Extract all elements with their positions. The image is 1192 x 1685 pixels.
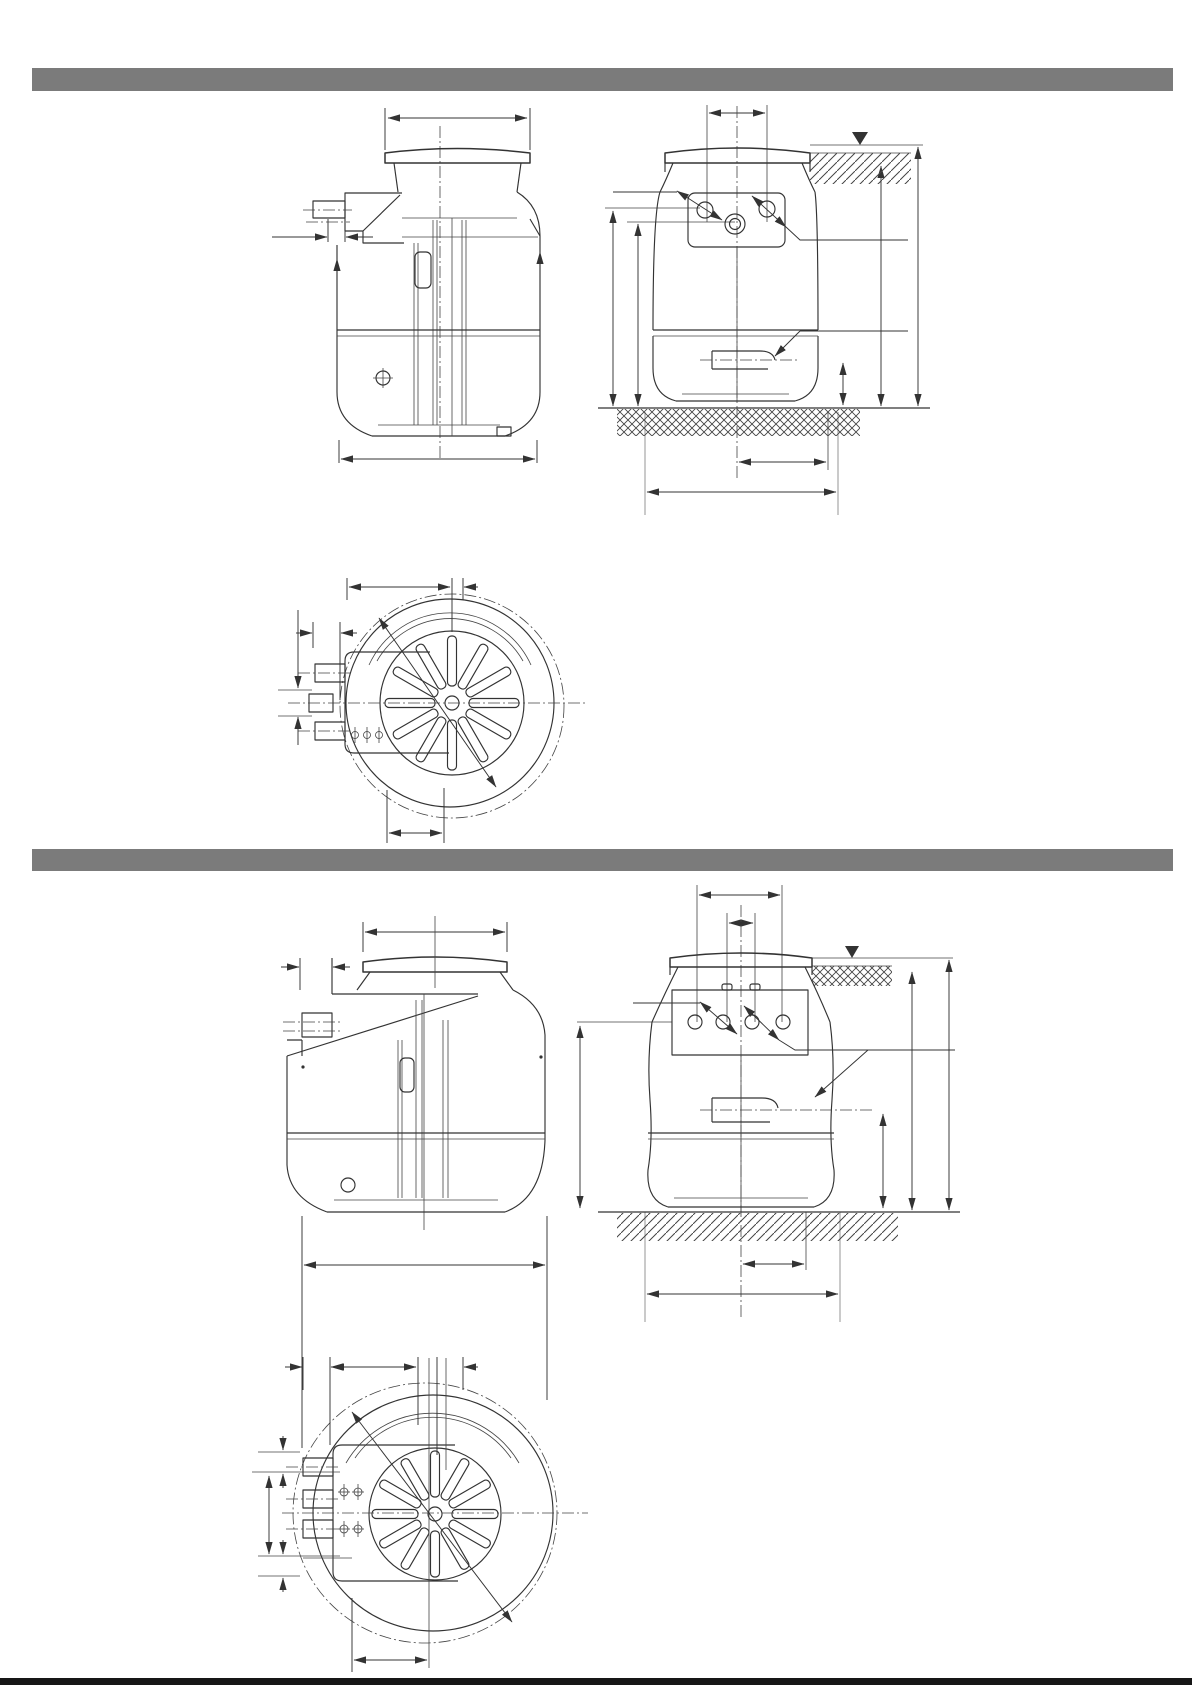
handle-recess <box>415 252 431 288</box>
hole-diameter-dim <box>752 196 786 227</box>
connection-hole <box>745 1015 759 1029</box>
technical-drawing-page <box>0 0 1192 1685</box>
center-gland <box>725 214 745 234</box>
ground <box>598 1212 960 1241</box>
tank-outline <box>653 148 908 401</box>
dimension-lines <box>577 885 955 1322</box>
drain-boss <box>341 1178 355 1192</box>
spoked-cover <box>369 1448 501 1580</box>
groundwater-level-icon <box>845 946 859 958</box>
cover-lid <box>385 149 530 164</box>
inlet-pipe-stub <box>313 201 345 218</box>
connection-plate <box>688 193 785 247</box>
earth-hatch-bottom <box>617 409 860 436</box>
bolt-symbols <box>352 727 383 743</box>
drawing-canvas <box>0 0 1192 1685</box>
connection-hole <box>697 202 713 218</box>
bolt-symbols <box>338 1484 364 1537</box>
dimension-lines <box>281 922 547 1448</box>
groundwater-level-icon <box>852 132 868 145</box>
section-bar-2 <box>32 849 1173 871</box>
connection-hole <box>688 1015 702 1029</box>
hole-diameter-dim <box>700 1002 737 1034</box>
inlet-pipe-stub <box>302 1013 332 1037</box>
pipe-stubs <box>288 664 585 740</box>
groundwater-level <box>810 132 923 145</box>
footer-strip <box>0 1678 1192 1685</box>
inlet-box <box>345 193 404 243</box>
dimension-lines <box>272 108 540 463</box>
earth-hatch-top <box>812 966 892 986</box>
tank-outline <box>303 149 540 437</box>
section-bar-1 <box>32 68 1173 91</box>
chamfer <box>287 996 478 1056</box>
upper-front-view <box>598 105 930 515</box>
connection-hole <box>776 1015 790 1029</box>
earth-hatch-bottom <box>617 1213 898 1241</box>
lower-front-view <box>577 885 960 1322</box>
earth-hatch-top <box>810 153 911 184</box>
upper-side-view <box>272 108 540 463</box>
hole-diameter-dim <box>744 1006 779 1040</box>
cover-lid <box>665 148 810 163</box>
upper-plan-view <box>278 578 585 843</box>
pit-diameter-dim <box>379 618 496 787</box>
groundwater-level <box>812 946 953 958</box>
pipe-stubs <box>282 1458 588 1558</box>
dimension-lines <box>278 578 496 843</box>
pit-diameter-dim <box>352 1412 512 1622</box>
tank-outline <box>648 953 872 1212</box>
ground <box>598 408 930 436</box>
lower-side-view <box>281 916 547 1448</box>
tank-outline <box>283 916 545 1230</box>
